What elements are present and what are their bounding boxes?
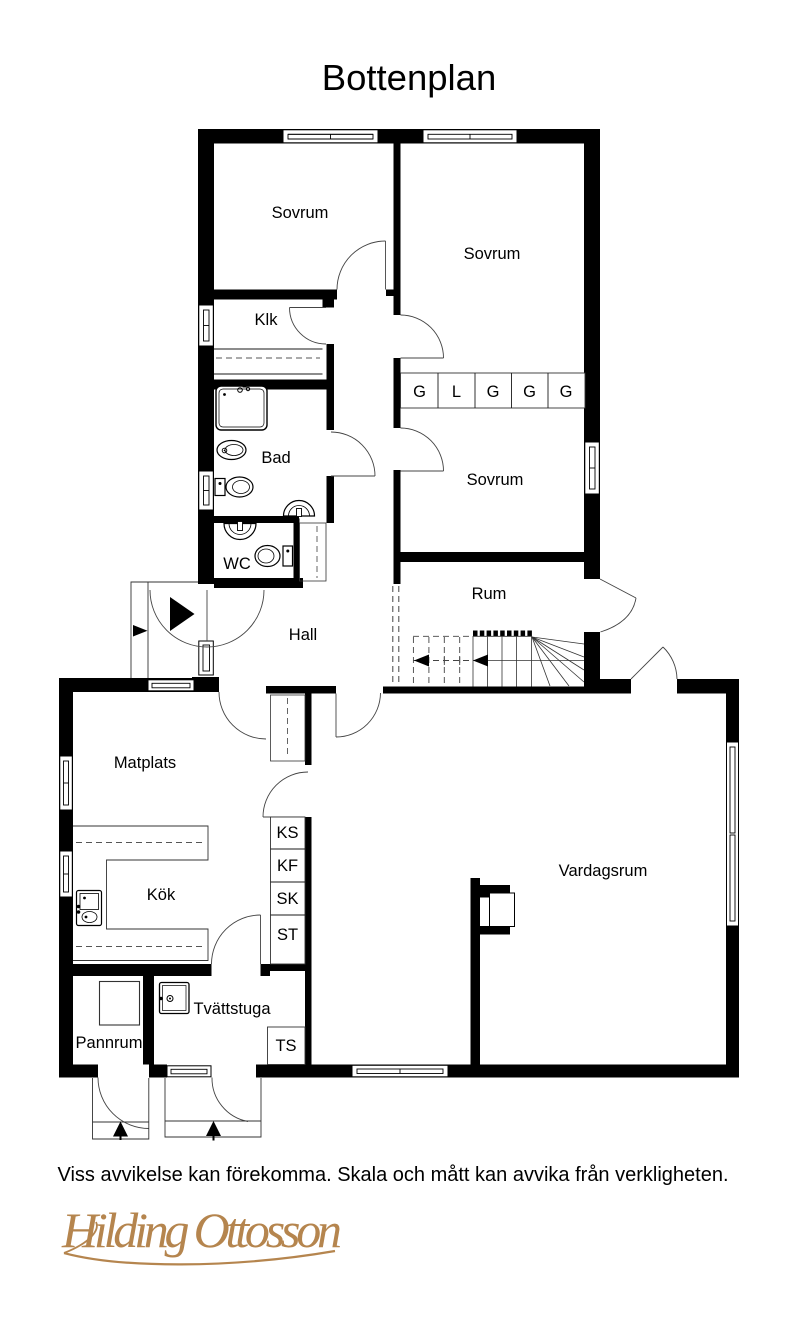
- svg-text:G: G: [560, 383, 573, 401]
- svg-text:Pannrum: Pannrum: [76, 1034, 143, 1052]
- svg-text:Rum: Rum: [472, 585, 507, 603]
- svg-text:Sovrum: Sovrum: [272, 204, 329, 222]
- svg-text:SK: SK: [276, 890, 298, 908]
- svg-text:Sovrum: Sovrum: [467, 471, 524, 489]
- svg-text:Vardagsrum: Vardagsrum: [559, 862, 648, 880]
- svg-text:WC: WC: [223, 555, 251, 573]
- svg-text:G: G: [487, 383, 500, 401]
- svg-text:Tvättstuga: Tvättstuga: [193, 1000, 271, 1018]
- svg-text:Hilding Ottosson: Hilding Ottosson: [61, 1202, 342, 1258]
- svg-text:Bad: Bad: [261, 449, 290, 467]
- svg-text:Viss avvikelse kan förekomma.: Viss avvikelse kan förekomma. Skala och …: [57, 1164, 728, 1186]
- svg-text:Matplats: Matplats: [114, 754, 176, 772]
- svg-text:KS: KS: [276, 824, 298, 842]
- svg-text:L: L: [452, 383, 461, 401]
- svg-text:Hall: Hall: [289, 626, 317, 644]
- svg-text:G: G: [413, 383, 426, 401]
- svg-text:KF: KF: [277, 857, 298, 875]
- svg-text:Kök: Kök: [147, 886, 176, 904]
- svg-text:Klk: Klk: [255, 311, 279, 329]
- svg-text:G: G: [523, 383, 536, 401]
- svg-text:TS: TS: [275, 1037, 296, 1055]
- svg-text:ST: ST: [277, 926, 298, 944]
- svg-text:Bottenplan: Bottenplan: [322, 57, 497, 98]
- svg-text:Sovrum: Sovrum: [464, 245, 521, 263]
